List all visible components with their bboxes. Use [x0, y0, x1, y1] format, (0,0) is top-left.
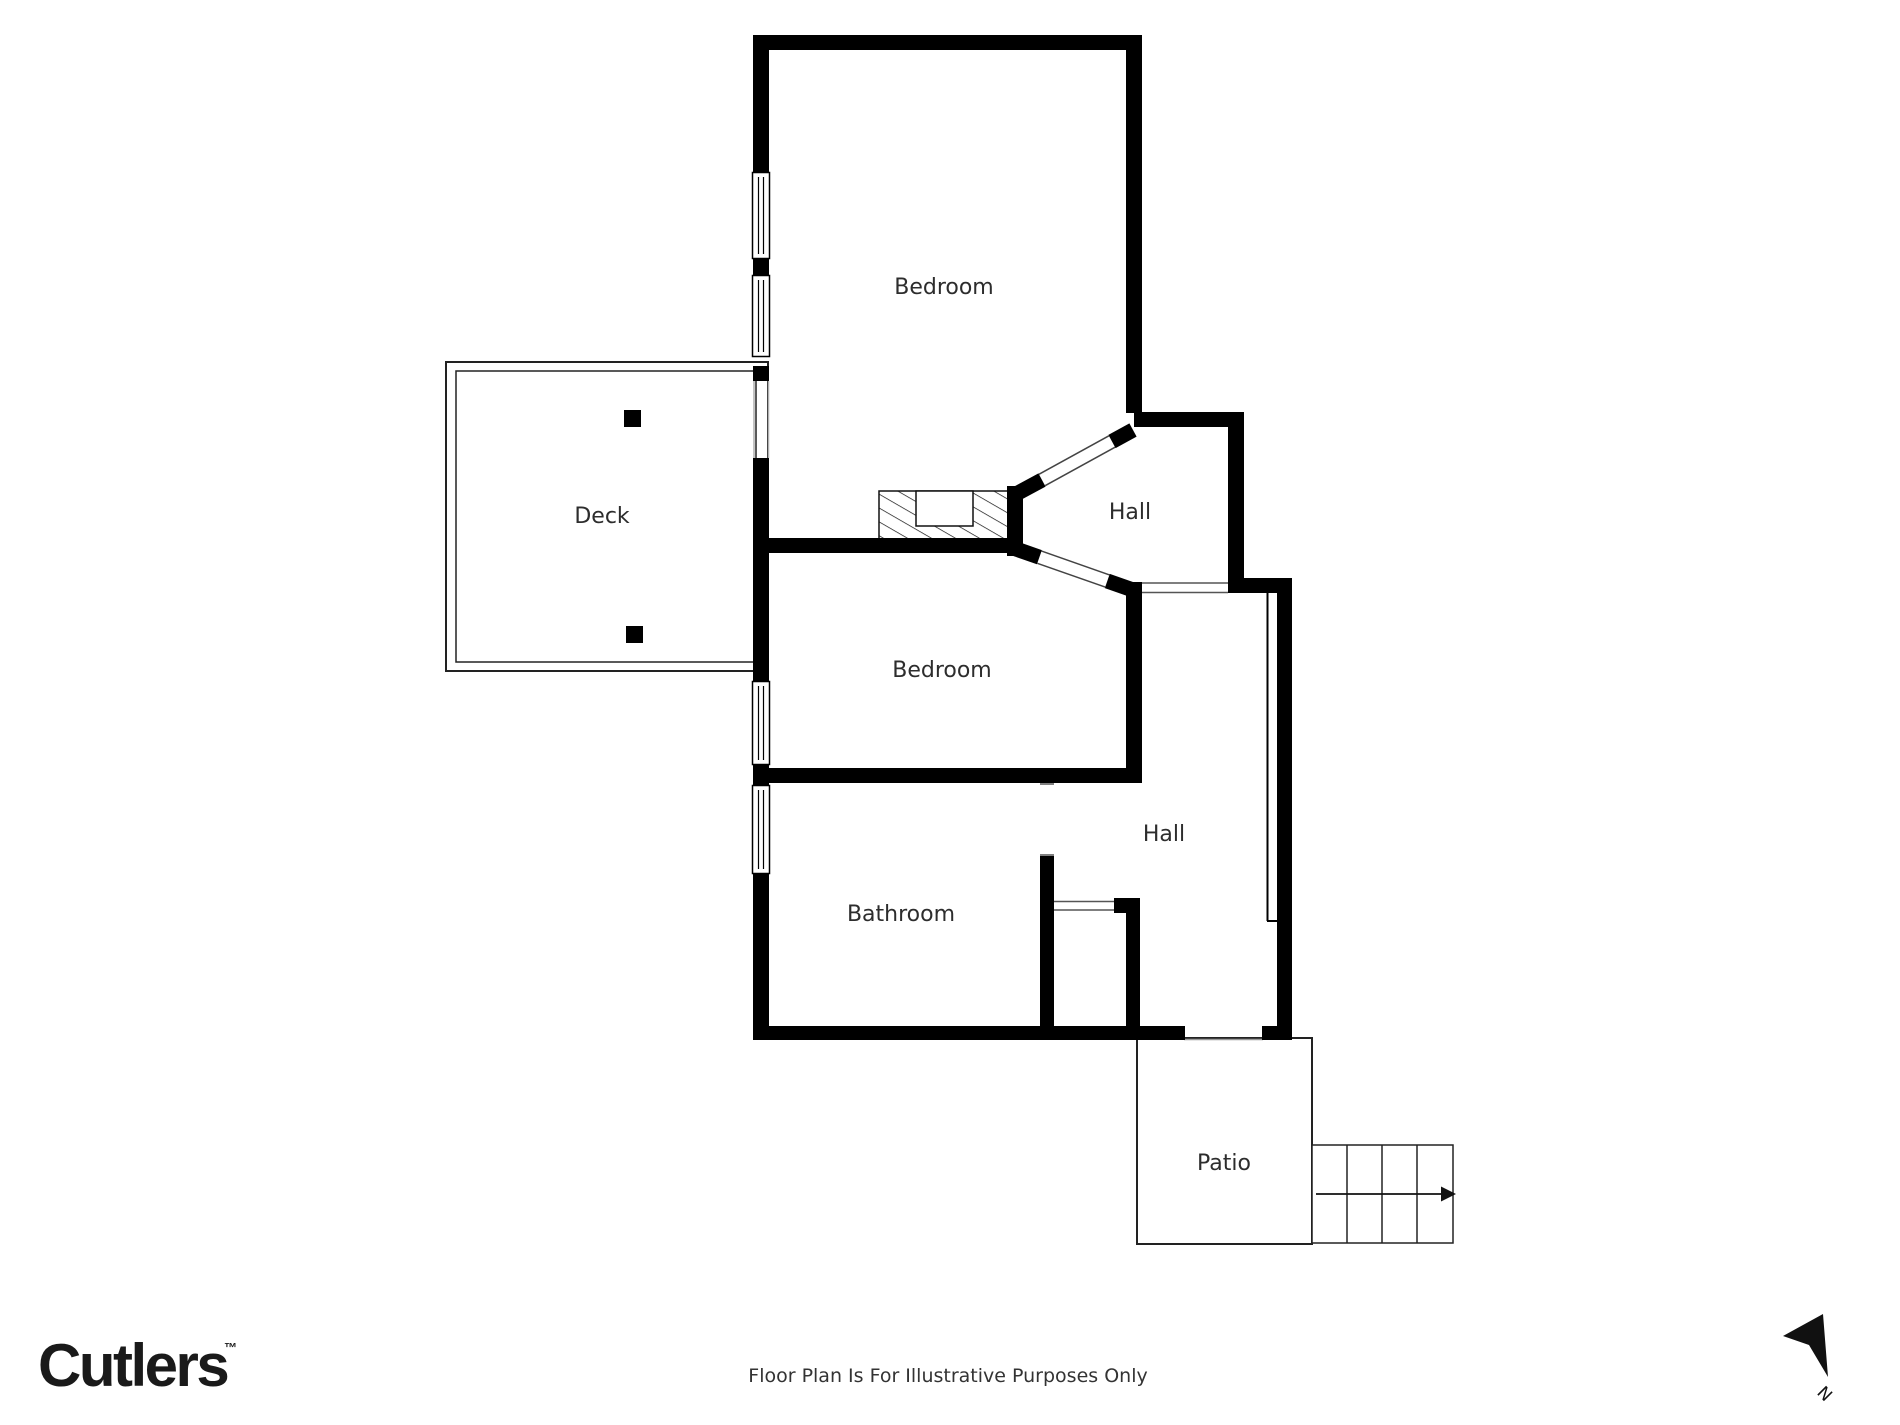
room-label-bedroom-1: Bedroom [894, 275, 994, 300]
room-label-deck: Deck [574, 504, 630, 529]
window [753, 276, 770, 357]
brand-logo: Cutlers [38, 1332, 227, 1399]
room-label-patio: Patio [1197, 1151, 1251, 1176]
room-label-bedroom-2: Bedroom [892, 658, 992, 683]
room-label-bathroom: Bathroom [847, 902, 955, 927]
bedroom2-angled-doorway [1016, 549, 1133, 590]
window [753, 682, 770, 765]
fireplace [879, 491, 1018, 539]
window [753, 173, 770, 259]
floor-plan-drawing: Bedroom Hall Deck Bedroom Hall Bathroom … [0, 0, 1900, 1425]
hall-wall-inner-line [1267, 593, 1277, 921]
room-label-hall-upper: Hall [1109, 500, 1151, 525]
fireplace-hearth [916, 491, 973, 526]
bedroom1-angled-doorway [1016, 430, 1133, 494]
patio-structure [1137, 1038, 1312, 1244]
brand-trademark: ™ [224, 1340, 237, 1355]
walls [753, 35, 1292, 1040]
window [753, 786, 770, 874]
deck-post [624, 410, 641, 427]
deck-post [626, 626, 643, 643]
staircase [1312, 1145, 1456, 1243]
disclaimer-text: Floor Plan Is For Illustrative Purposes … [748, 1365, 1147, 1387]
floor-plan-page: Bedroom Hall Deck Bedroom Hall Bathroom … [0, 0, 1900, 1425]
north-arrow-icon: N [1783, 1314, 1836, 1406]
room-label-hall-lower: Hall [1143, 822, 1185, 847]
north-label: N [1813, 1383, 1836, 1406]
